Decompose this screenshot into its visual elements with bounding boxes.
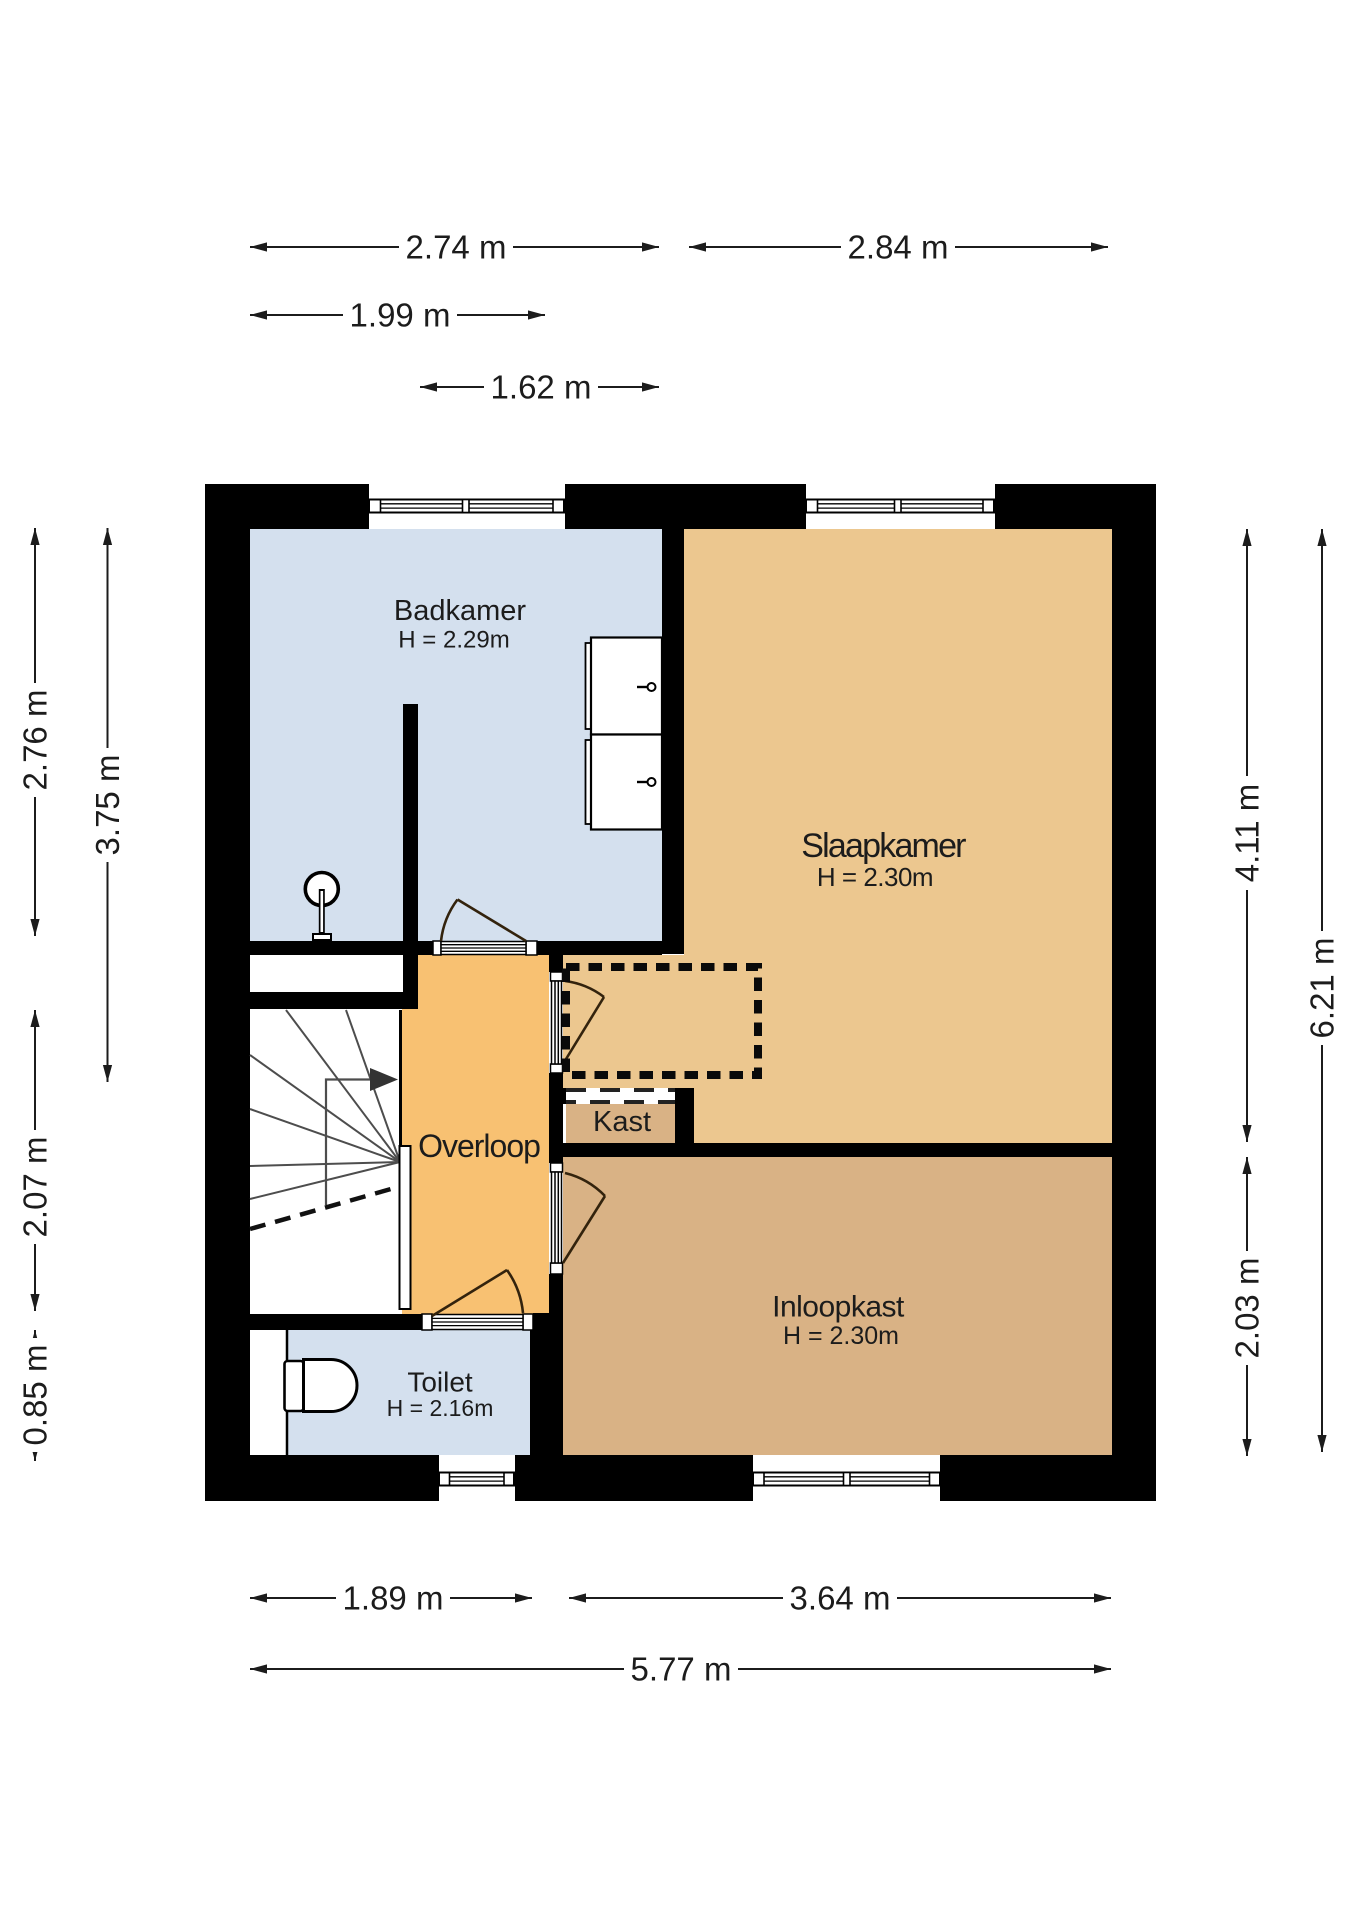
svg-text:H = 2.30m: H = 2.30m: [817, 862, 933, 892]
svg-text:2.76 m: 2.76 m: [17, 690, 54, 791]
svg-text:H = 2.30m: H = 2.30m: [783, 1322, 899, 1350]
svg-text:Badkamer: Badkamer: [394, 595, 527, 627]
svg-text:1.89 m: 1.89 m: [343, 1580, 444, 1617]
svg-text:Toilet: Toilet: [407, 1367, 473, 1398]
svg-text:3.64 m: 3.64 m: [790, 1580, 891, 1617]
svg-text:6.21 m: 6.21 m: [1304, 938, 1341, 1039]
svg-text:1.99 m: 1.99 m: [350, 297, 451, 334]
svg-text:2.84 m: 2.84 m: [848, 229, 949, 266]
svg-text:H = 2.29m: H = 2.29m: [398, 627, 509, 654]
svg-text:1.62 m: 1.62 m: [491, 369, 592, 406]
svg-text:5.77 m: 5.77 m: [631, 1651, 732, 1688]
svg-text:2.74 m: 2.74 m: [406, 229, 507, 266]
svg-text:4.11 m: 4.11 m: [1229, 784, 1266, 882]
svg-text:H = 2.16m: H = 2.16m: [387, 1395, 494, 1421]
svg-text:3.75 m: 3.75 m: [89, 755, 126, 856]
svg-text:Kast: Kast: [593, 1106, 651, 1138]
svg-text:2.03 m: 2.03 m: [1229, 1258, 1266, 1359]
svg-text:Inloopkast: Inloopkast: [772, 1291, 905, 1324]
svg-text:Slaapkamer: Slaapkamer: [801, 827, 966, 865]
svg-text:0.85 m: 0.85 m: [17, 1345, 54, 1446]
svg-text:Overloop: Overloop: [418, 1128, 540, 1164]
svg-text:2.07 m: 2.07 m: [17, 1137, 54, 1238]
